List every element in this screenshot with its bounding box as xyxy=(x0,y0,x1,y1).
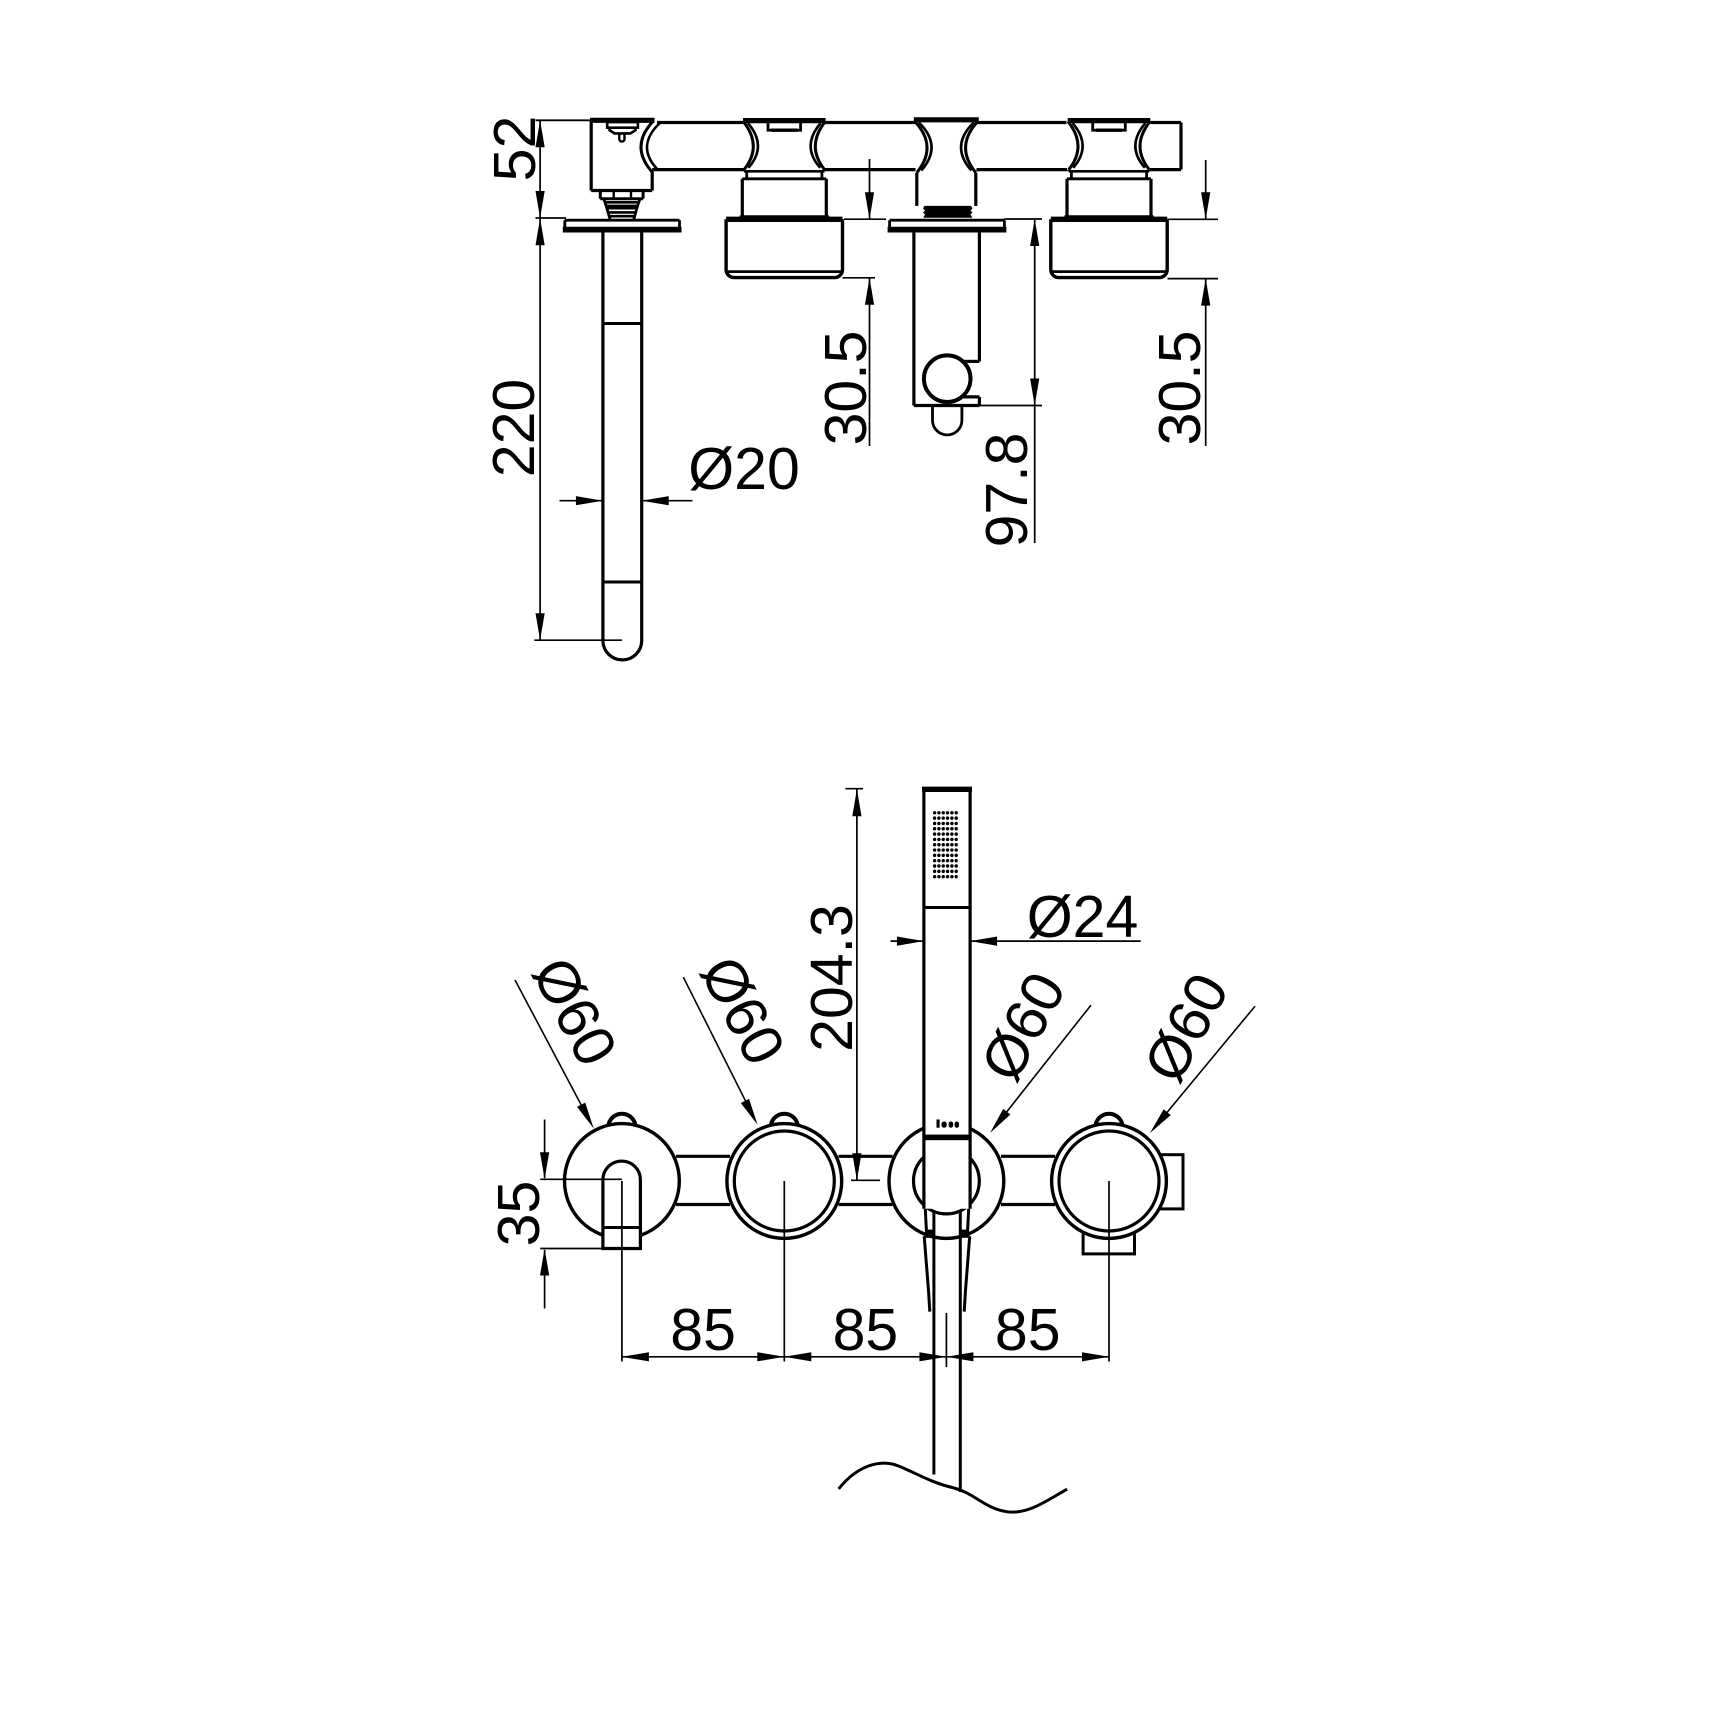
svg-text:85: 85 xyxy=(833,1297,899,1363)
svg-text:Ø24: Ø24 xyxy=(1027,884,1139,950)
svg-text:220: 220 xyxy=(481,379,547,477)
svg-text:30.5: 30.5 xyxy=(1147,331,1213,446)
svg-text:Ø20: Ø20 xyxy=(688,436,800,502)
svg-text:97.8: 97.8 xyxy=(974,433,1040,548)
svg-text:204.3: 204.3 xyxy=(799,904,865,1052)
svg-text:35: 35 xyxy=(486,1181,552,1247)
svg-text:30.5: 30.5 xyxy=(813,331,879,446)
svg-text:85: 85 xyxy=(995,1297,1061,1363)
svg-text:52: 52 xyxy=(482,116,548,182)
svg-text:85: 85 xyxy=(670,1297,736,1363)
